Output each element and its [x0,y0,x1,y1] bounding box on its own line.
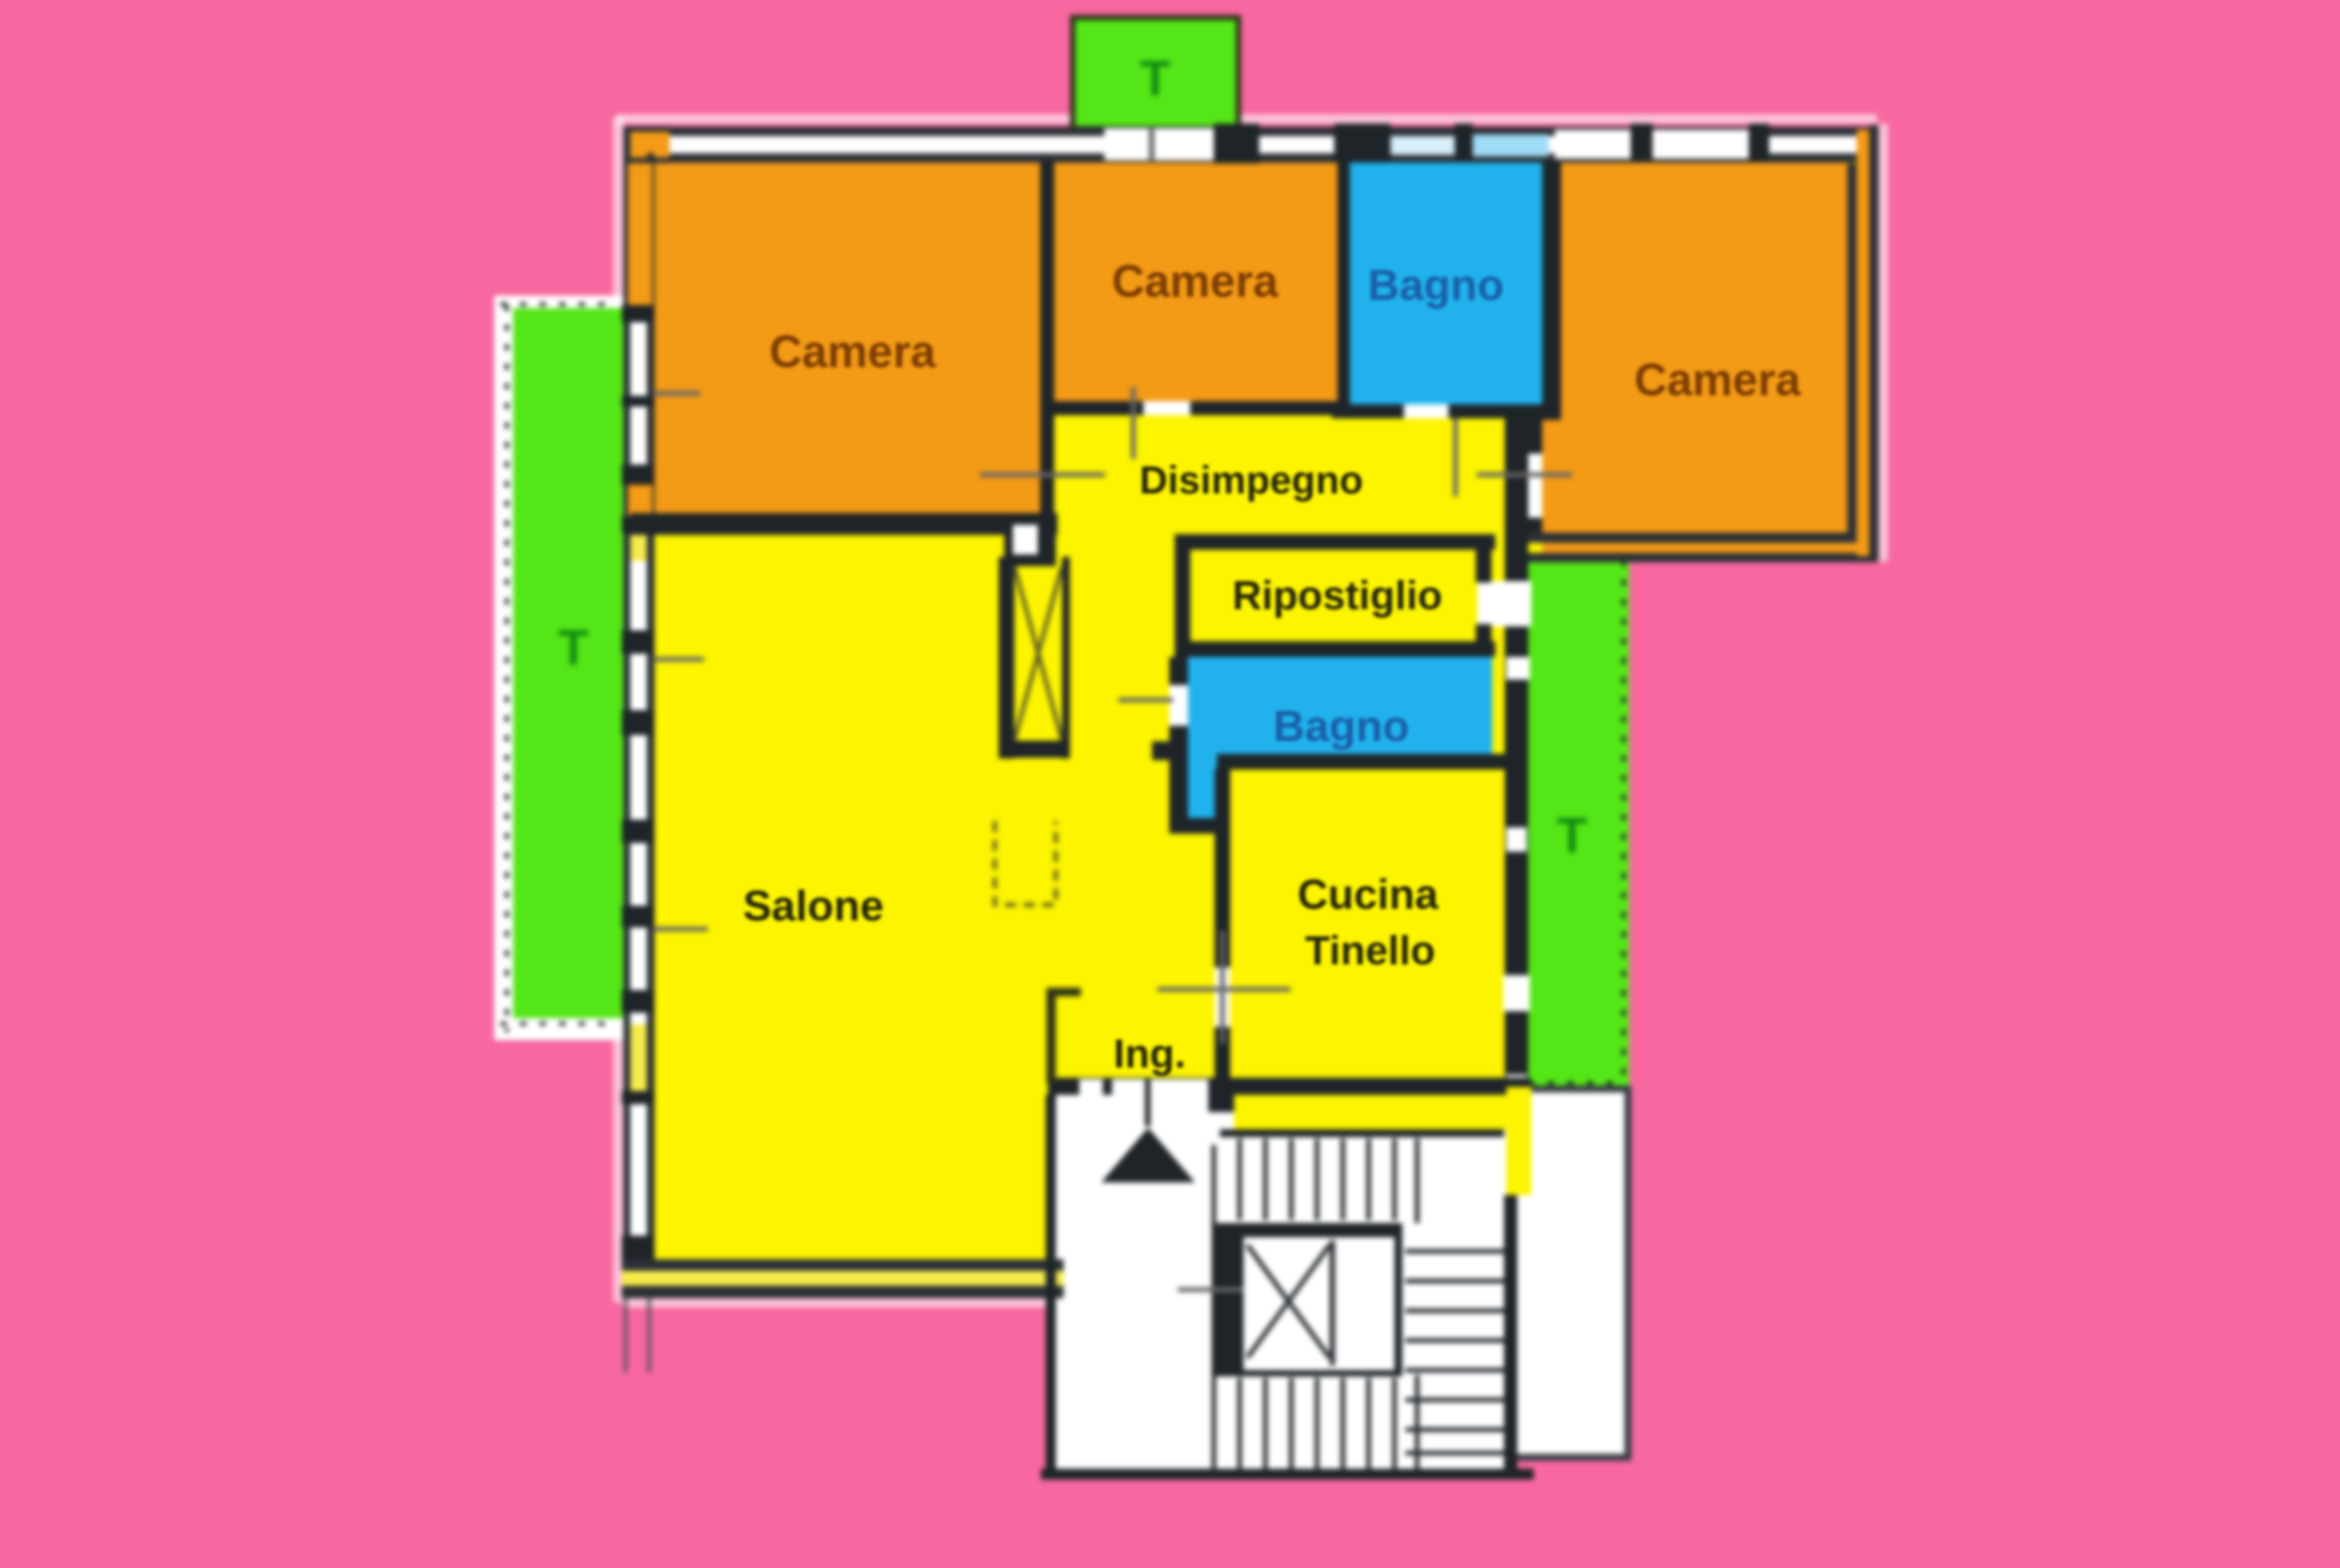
svg-text:Camera: Camera [1112,257,1279,307]
svg-text:Disimpegno: Disimpegno [1139,458,1363,502]
svg-text:Cucina: Cucina [1297,871,1439,918]
svg-text:Bagno: Bagno [1273,701,1409,751]
svg-text:Salone: Salone [743,881,884,930]
svg-text:Camera: Camera [770,327,937,378]
svg-text:Camera: Camera [1635,355,1802,406]
svg-text:Bagno: Bagno [1368,260,1504,310]
svg-text:Tinello: Tinello [1305,928,1436,974]
svg-text:Ripostiglio: Ripostiglio [1233,573,1443,619]
svg-text:Ing.: Ing. [1114,1032,1186,1077]
